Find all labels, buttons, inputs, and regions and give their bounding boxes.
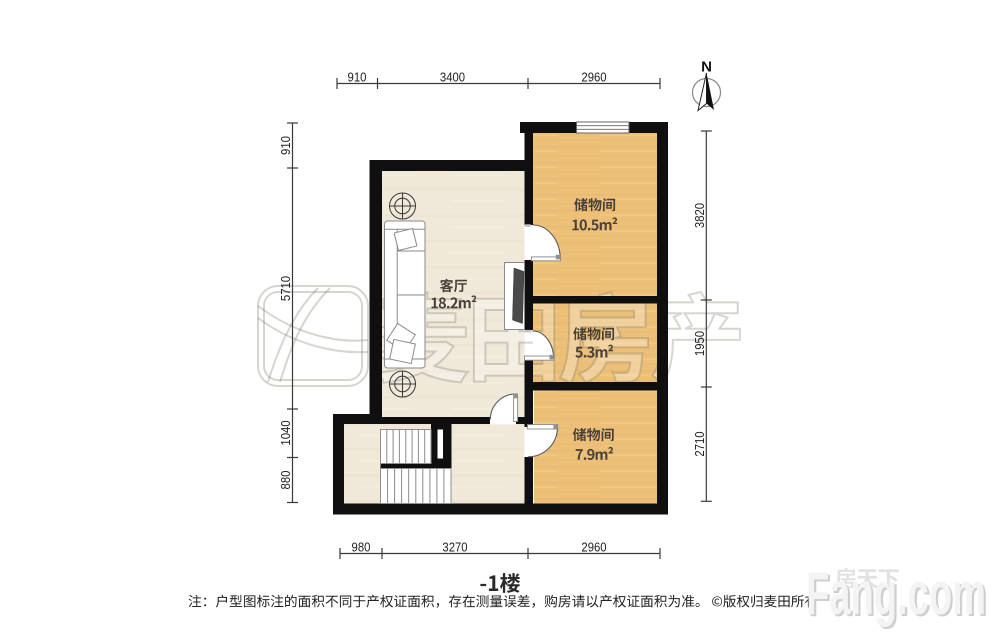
svg-text:1950: 1950 [692,331,707,356]
svg-text:910: 910 [278,136,293,155]
svg-text:910: 910 [348,69,367,84]
svg-text:980: 980 [352,539,371,554]
svg-text:2960: 2960 [581,539,606,554]
svg-text:2710: 2710 [692,431,707,456]
svg-text:5710: 5710 [278,276,293,301]
svg-text:3400: 3400 [440,69,465,84]
svg-text:2960: 2960 [581,69,606,84]
svg-text:Fang.com: Fang.com [806,560,986,627]
svg-text:3270: 3270 [442,539,467,554]
svg-text:880: 880 [278,471,293,490]
svg-text:3820: 3820 [692,203,707,228]
svg-text:1040: 1040 [278,420,293,445]
